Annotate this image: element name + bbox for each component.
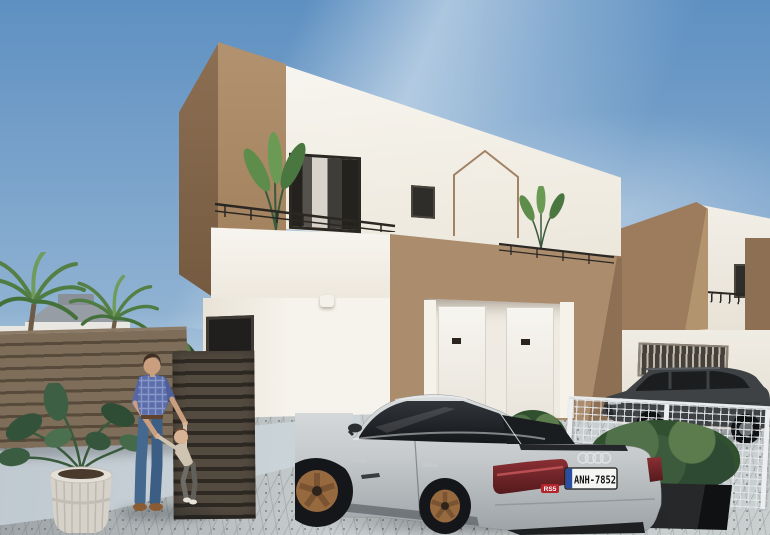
door-handle-right [521, 339, 530, 345]
wall-lamp [320, 295, 334, 307]
child-shoe [189, 500, 197, 505]
rear-wheel [419, 478, 471, 534]
man-and-child [110, 349, 218, 523]
door-handle-left [452, 338, 461, 344]
plate-number: ANH-7852 [574, 475, 616, 487]
house-shape-outline [454, 151, 518, 238]
door-handle [353, 459, 366, 463]
child-head [174, 430, 188, 444]
model-badge: RS5 [541, 484, 559, 493]
leaf [517, 193, 538, 223]
render-scene: ANH-7852 RS5 [0, 0, 770, 535]
man-forearm [172, 399, 184, 421]
child-hand [183, 422, 187, 426]
man-shirt [137, 375, 168, 417]
terrace-railing-left [211, 196, 397, 232]
leaf [266, 132, 284, 185]
badge-label: RS5 [544, 486, 557, 493]
leaf [1, 407, 47, 446]
pot-soil [58, 469, 104, 479]
trunk-spoiler [519, 444, 628, 451]
man-shoe [149, 503, 163, 511]
child-leg [183, 463, 188, 497]
leaf [0, 446, 31, 468]
silver-sportback-car: ANH-7852 RS5 [295, 387, 667, 535]
man-shoe [133, 503, 147, 511]
man-head [144, 358, 161, 375]
suv-roof-rail [646, 368, 720, 369]
license-plate: ANH-7852 [565, 468, 617, 489]
door-handle [422, 463, 438, 468]
upper-small-window [411, 185, 435, 219]
far-right-tan-wall [745, 238, 770, 336]
child-hand [156, 434, 160, 438]
child-shirt [175, 444, 193, 467]
child-leg [193, 464, 195, 499]
leaf [546, 191, 565, 221]
man-belt [141, 415, 163, 419]
leaf [41, 383, 72, 423]
man-leg [140, 419, 144, 501]
terrace-railing-right [497, 238, 617, 266]
leaf [537, 186, 546, 214]
plate-eu-strip [566, 469, 573, 489]
gable-outline-decoration [449, 144, 523, 240]
car-rear-window [502, 415, 575, 444]
